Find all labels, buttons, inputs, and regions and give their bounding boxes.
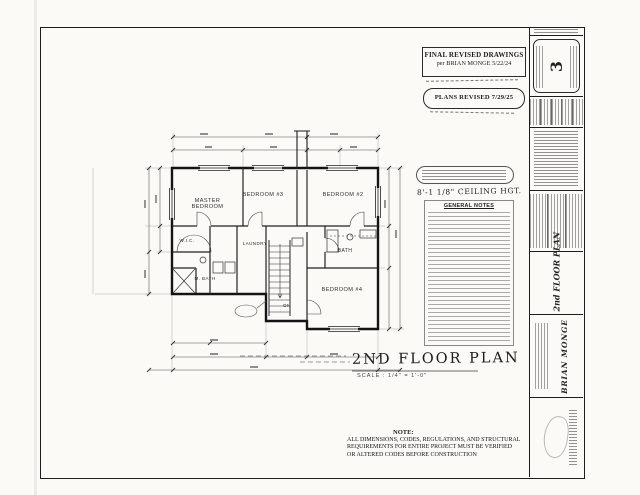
revision-cell	[562, 99, 573, 125]
note-line-3: OR ALTERED CODES BEFORE CONSTRUCTION	[347, 452, 527, 459]
label-bedroom-3: BEDROOM #3	[238, 192, 288, 198]
ceiling-note-bubble	[416, 166, 514, 184]
chase-walls	[294, 131, 310, 226]
label-laundry: LAUNDRY	[239, 241, 271, 247]
title-block-strip: 3 2nd FLOOR PLAN BRIAN MONGE	[529, 27, 583, 477]
revision-cell	[573, 99, 583, 125]
note-line-2: REQUIREMENTS FOR ENTIRE PROJECT MUST BE …	[347, 444, 527, 451]
note-heading: NOTE:	[393, 429, 414, 436]
plan-revision-cloud	[235, 301, 266, 317]
strip-dense-notes-section	[530, 128, 583, 191]
final-revised-line1: FINAL REVISED DRAWINGS	[423, 51, 525, 59]
plans-revised-box: PLANS REVISED 7/29/25	[423, 88, 525, 109]
general-notes-box: GENERAL NOTES	[424, 200, 514, 346]
label-bedroom-2: BEDROOM #2	[318, 192, 368, 198]
label-master-bedroom: MASTER BEDROOM	[180, 198, 235, 210]
ceiling-height-note: 8'-1 1/8" CEILING HGT.	[417, 186, 527, 197]
owner-name: BRIAN MONGE	[560, 319, 569, 394]
revision-table-section	[530, 97, 583, 128]
sheet-number: 3	[547, 60, 566, 71]
revision-cell	[552, 99, 563, 125]
illegible-bubble-text	[422, 170, 506, 180]
info-cell	[530, 194, 548, 248]
owner-address-illegible	[535, 323, 549, 389]
revision-cell	[541, 99, 552, 125]
sheet-meta-right-illegible	[570, 46, 577, 88]
sheet-number-section: 3	[530, 36, 583, 97]
sheet-number-frame: 3	[533, 39, 580, 93]
owner-section: BRIAN MONGE	[530, 315, 583, 398]
sheet-meta-left-illegible	[536, 46, 543, 88]
interior-walls	[172, 168, 378, 321]
revision-cell	[530, 99, 541, 125]
stamp-mark	[541, 415, 571, 460]
strip-header-illegible	[534, 29, 578, 33]
label-bedroom-4: BEDROOM #4	[317, 287, 367, 293]
general-notes-title: GENERAL NOTES	[428, 203, 510, 209]
door-swings	[177, 212, 364, 314]
label-master-bath: M. BATH	[190, 276, 220, 282]
scan-streak	[34, 0, 37, 495]
note-lines: ALL DIMENSIONS, CODES, REGULATIONS, AND …	[347, 437, 527, 459]
info-cell	[566, 194, 583, 248]
drawing-scale: SCALE : 1/4" = 1'-0"	[357, 373, 427, 379]
plans-revised-text: PLANS REVISED 7/29/25	[424, 89, 524, 107]
note-line-1: ALL DIMENSIONS, CODES, REGULATIONS, AND …	[347, 437, 527, 444]
drawing-title: 2ND FLOOR PLAN	[352, 350, 520, 368]
general-notes-body-illegible	[428, 212, 510, 342]
label-bath: BATH	[332, 248, 358, 254]
stamp-text-illegible	[569, 410, 577, 466]
stamp-section	[530, 398, 583, 477]
final-revised-box: FINAL REVISED DRAWINGS per BRIAN MONGE 5…	[422, 47, 526, 77]
label-wic: W.I.C.	[176, 238, 198, 244]
sheet-title: 2nd FLOOR PLAN	[552, 255, 561, 311]
plumbing-fixtures	[173, 230, 378, 293]
label-stairs-dn: DN	[281, 303, 293, 309]
sheet-title-section: 2nd FLOOR PLAN	[530, 252, 583, 315]
strip-dense-notes-illegible	[534, 131, 578, 186]
final-revised-line2: per BRIAN MONGE 5/22/24	[423, 60, 525, 67]
strip-header-row	[530, 27, 583, 36]
dimension-lines	[149, 137, 400, 370]
blueprint-page: MASTER BEDROOM BEDROOM #3 BEDROOM #2 BAT…	[0, 0, 640, 495]
